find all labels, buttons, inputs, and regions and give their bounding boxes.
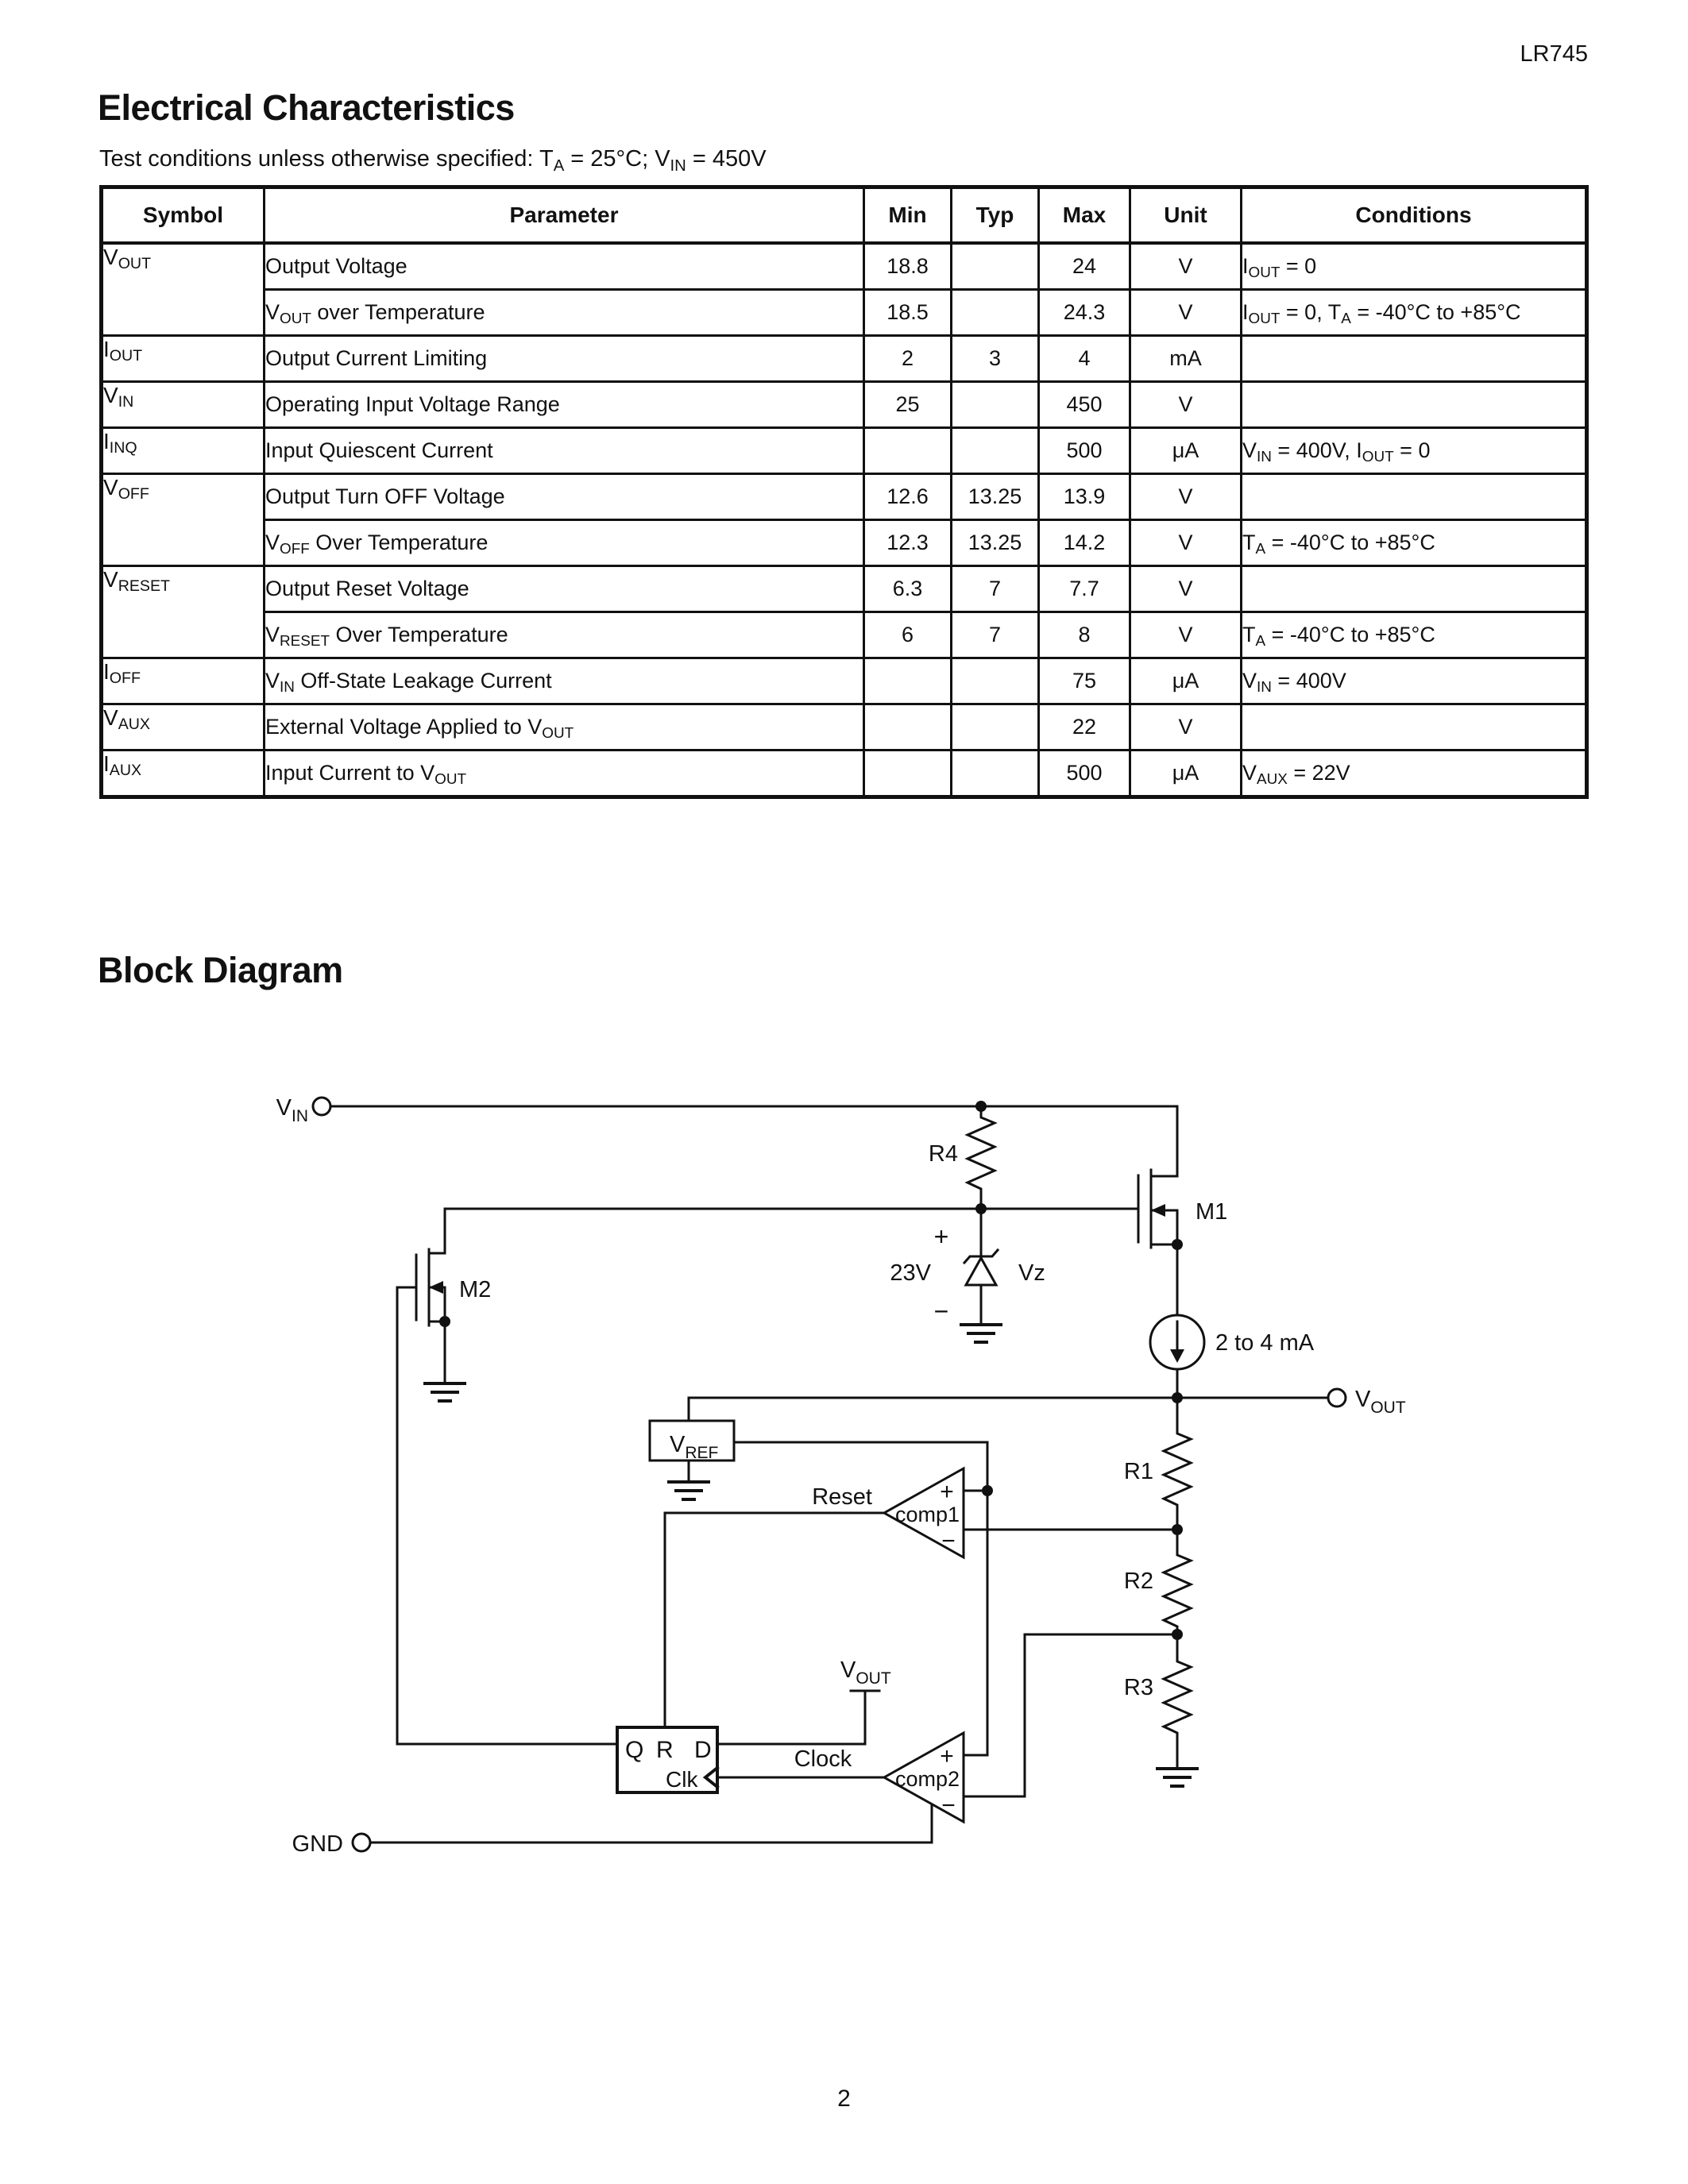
page-number: 2 — [0, 2086, 1688, 2113]
min-cell — [864, 428, 952, 474]
unit-cell: μA — [1130, 658, 1242, 704]
parameter-cell: Input Quiescent Current — [265, 428, 864, 474]
symbol-cell: VAUX — [102, 704, 265, 751]
table-row: VAUX External Voltage Applied to VOUT 22… — [102, 704, 1587, 751]
r4-label: R4 — [929, 1141, 958, 1167]
ff-d-output-wire — [717, 1691, 879, 1744]
electrical-characteristics-table: Symbol Parameter Min Typ Max Unit Condit… — [99, 185, 1589, 799]
min-cell — [864, 704, 952, 751]
comp2-plus-label: + — [940, 1743, 954, 1769]
max-cell: 24.3 — [1039, 290, 1130, 336]
unit-cell: V — [1130, 290, 1242, 336]
junction-dot — [1172, 1629, 1183, 1640]
conditions-cell: VIN = 400V, IOUT = 0 — [1242, 428, 1587, 474]
r3-ground-symbol — [1157, 1769, 1197, 1786]
typ-cell: 7 — [952, 566, 1039, 612]
comp1-label: comp1 — [895, 1503, 960, 1526]
comp2-minus-wire — [964, 1634, 1177, 1796]
r1-label: R1 — [1124, 1459, 1153, 1484]
unit-cell: V — [1130, 704, 1242, 751]
min-cell: 25 — [864, 382, 952, 428]
m1-label: M1 — [1196, 1199, 1227, 1225]
typ-cell: 3 — [952, 336, 1039, 382]
column-header-max: Max — [1039, 187, 1130, 244]
junction-dot — [439, 1316, 450, 1327]
comp2-label: comp2 — [895, 1767, 960, 1791]
parameter-cell: VRESET Over Temperature — [265, 612, 864, 658]
table-row: VRESET Over Temperature 6 7 8 V TA = -40… — [102, 612, 1587, 658]
max-cell: 13.9 — [1039, 474, 1130, 520]
table-row: IINQ Input Quiescent Current 500 μA VIN … — [102, 428, 1587, 474]
conditions-cell — [1242, 382, 1587, 428]
min-cell: 12.6 — [864, 474, 952, 520]
ff-d-label: D — [694, 1737, 712, 1763]
min-cell: 12.3 — [864, 520, 952, 566]
current-source-label: 2 to 4 mA — [1215, 1330, 1315, 1356]
typ-cell — [952, 428, 1039, 474]
max-cell: 500 — [1039, 428, 1130, 474]
conditions-cell: TA = -40°C to +85°C — [1242, 520, 1587, 566]
mosfet-m1 — [1138, 1170, 1177, 1315]
vin-label: VIN — [276, 1095, 308, 1125]
symbol-cell: IOUT — [102, 336, 265, 382]
comp1-plus-label: + — [940, 1479, 954, 1505]
typ-cell — [952, 658, 1039, 704]
gnd-label: GND — [292, 1831, 343, 1857]
mosfet-m2 — [397, 1249, 617, 1744]
max-cell: 450 — [1039, 382, 1130, 428]
min-cell: 6.3 — [864, 566, 952, 612]
min-cell: 2 — [864, 336, 952, 382]
min-cell — [864, 751, 952, 797]
ff-clk-label: Clk — [666, 1767, 698, 1792]
parameter-cell: VOUT over Temperature — [265, 290, 864, 336]
junction-dot — [1172, 1392, 1183, 1403]
zener-plus-label: + — [934, 1222, 949, 1251]
max-cell: 22 — [1039, 704, 1130, 751]
conditions-cell — [1242, 474, 1587, 520]
table-row: VOUT over Temperature 18.5 24.3 V IOUT =… — [102, 290, 1587, 336]
gnd-terminal — [353, 1834, 370, 1851]
symbol-cell: IINQ — [102, 428, 265, 474]
conditions-cell — [1242, 566, 1587, 612]
table-row: IAUX Input Current to VOUT 500 μA VAUX =… — [102, 751, 1587, 797]
table-header-row: Symbol Parameter Min Typ Max Unit Condit… — [102, 187, 1587, 244]
vout-rail-wire — [689, 1398, 1328, 1421]
conditions-cell: VIN = 400V — [1242, 658, 1587, 704]
vin-terminal — [313, 1098, 330, 1115]
zener-anode-triangle — [966, 1258, 996, 1285]
table-row: VOUT Output Voltage 18.8 24 V IOUT = 0 — [102, 243, 1587, 290]
junction-dot — [1172, 1239, 1183, 1250]
conditions-cell: TA = -40°C to +85°C — [1242, 612, 1587, 658]
reset-label: Reset — [812, 1484, 872, 1510]
unit-cell: V — [1130, 612, 1242, 658]
vin-rail-wire — [330, 1106, 1177, 1176]
parameter-cell: Output Reset Voltage — [265, 566, 864, 612]
column-header-min: Min — [864, 187, 952, 244]
table-row: VOFF Output Turn OFF Voltage 12.6 13.25 … — [102, 474, 1587, 520]
max-cell: 8 — [1039, 612, 1130, 658]
datasheet-page: LR745 Electrical Characteristics Test co… — [0, 0, 1688, 2184]
unit-cell: V — [1130, 474, 1242, 520]
unit-cell: μA — [1130, 428, 1242, 474]
max-cell: 4 — [1039, 336, 1130, 382]
m2-label: M2 — [459, 1277, 491, 1302]
resistor-r4 — [968, 1106, 995, 1209]
conditions-cell: IOUT = 0 — [1242, 243, 1587, 290]
vout-stub-label: VOUT — [840, 1657, 891, 1688]
parameter-cell: External Voltage Applied to VOUT — [265, 704, 864, 751]
parameter-cell: Input Current to VOUT — [265, 751, 864, 797]
resistor-r3 — [1164, 1634, 1191, 1769]
unit-cell: V — [1130, 382, 1242, 428]
parameter-cell: Output Current Limiting — [265, 336, 864, 382]
symbol-cell: IAUX — [102, 751, 265, 797]
unit-cell: mA — [1130, 336, 1242, 382]
parameter-cell: Output Turn OFF Voltage — [265, 474, 864, 520]
table-row: VRESET Output Reset Voltage 6.3 7 7.7 V — [102, 566, 1587, 612]
resistor-r2 — [1164, 1530, 1191, 1634]
typ-cell: 7 — [952, 612, 1039, 658]
doc-code: LR745 — [1520, 41, 1588, 68]
block-diagram-schematic: VIN R4 M1 M2 + 23V Vz − 2 to 4 mA VOUT V… — [0, 1017, 1688, 1946]
ff-q-label: Q — [625, 1737, 643, 1763]
conditions-cell — [1242, 336, 1587, 382]
reset-wire — [665, 1513, 884, 1727]
parameter-cell: Output Voltage — [265, 243, 864, 290]
table-row: VOFF Over Temperature 12.3 13.25 14.2 V … — [102, 520, 1587, 566]
symbol-cell: VRESET — [102, 566, 265, 658]
zener-name-label: Vz — [1018, 1260, 1045, 1286]
max-cell: 7.7 — [1039, 566, 1130, 612]
junction-dots — [439, 1101, 1183, 1640]
unit-cell: V — [1130, 520, 1242, 566]
symbol-cell: VOFF — [102, 474, 265, 566]
min-cell: 18.8 — [864, 243, 952, 290]
zener-ground-symbol — [961, 1325, 1001, 1342]
typ-cell — [952, 382, 1039, 428]
current-source — [1150, 1315, 1204, 1398]
unit-cell: V — [1130, 566, 1242, 612]
min-cell: 18.5 — [864, 290, 952, 336]
section-title-block-diagram: Block Diagram — [98, 950, 343, 991]
resistor-r1 — [1164, 1398, 1191, 1530]
conditions-cell: IOUT = 0, TA = -40°C to +85°C — [1242, 290, 1587, 336]
typ-cell: 13.25 — [952, 520, 1039, 566]
max-cell: 24 — [1039, 243, 1130, 290]
symbol-cell: VOUT — [102, 243, 265, 336]
min-cell: 6 — [864, 612, 952, 658]
test-conditions: Test conditions unless otherwise specifi… — [99, 146, 767, 172]
symbol-cell: IOFF — [102, 658, 265, 704]
clock-label: Clock — [794, 1746, 852, 1772]
vout-label: VOUT — [1355, 1387, 1406, 1417]
r3-label: R3 — [1124, 1675, 1153, 1700]
vref-ground-symbol — [669, 1482, 709, 1499]
max-cell: 75 — [1039, 658, 1130, 704]
parameter-cell: Operating Input Voltage Range — [265, 382, 864, 428]
section-title-electrical-characteristics: Electrical Characteristics — [98, 87, 515, 129]
parameter-cell: VOFF Over Temperature — [265, 520, 864, 566]
column-header-typ: Typ — [952, 187, 1039, 244]
junction-dot — [975, 1101, 987, 1112]
zener-voltage-label: 23V — [890, 1260, 931, 1286]
junction-dot — [975, 1203, 987, 1214]
junction-dot — [1172, 1524, 1183, 1535]
m2-ground-symbol — [425, 1383, 465, 1401]
ff-r-label: R — [656, 1737, 674, 1763]
unit-cell: μA — [1130, 751, 1242, 797]
typ-cell — [952, 751, 1039, 797]
comp2-minus-label: − — [941, 1792, 956, 1819]
table-row: IOUT Output Current Limiting 2 3 4 mA — [102, 336, 1587, 382]
gate-rail-wire — [445, 1209, 1138, 1253]
typ-cell: 13.25 — [952, 474, 1039, 520]
table-row: IOFF VIN Off-State Leakage Current 75 μA… — [102, 658, 1587, 704]
min-cell — [864, 658, 952, 704]
symbol-cell: VIN — [102, 382, 265, 428]
zener-minus-label: − — [934, 1297, 949, 1325]
max-cell: 500 — [1039, 751, 1130, 797]
typ-cell — [952, 704, 1039, 751]
table-row: VIN Operating Input Voltage Range 25 450… — [102, 382, 1587, 428]
vout-terminal — [1328, 1389, 1346, 1406]
typ-cell — [952, 290, 1039, 336]
junction-dot — [982, 1485, 993, 1496]
typ-cell — [952, 243, 1039, 290]
parameter-cell: VIN Off-State Leakage Current — [265, 658, 864, 704]
column-header-parameter: Parameter — [265, 187, 864, 244]
column-header-unit: Unit — [1130, 187, 1242, 244]
unit-cell: V — [1130, 243, 1242, 290]
column-header-conditions: Conditions — [1242, 187, 1587, 244]
comp1-minus-label: − — [941, 1528, 956, 1554]
conditions-cell — [1242, 704, 1587, 751]
r2-label: R2 — [1124, 1569, 1153, 1594]
conditions-cell: VAUX = 22V — [1242, 751, 1587, 797]
max-cell: 14.2 — [1039, 520, 1130, 566]
column-header-symbol: Symbol — [102, 187, 265, 244]
